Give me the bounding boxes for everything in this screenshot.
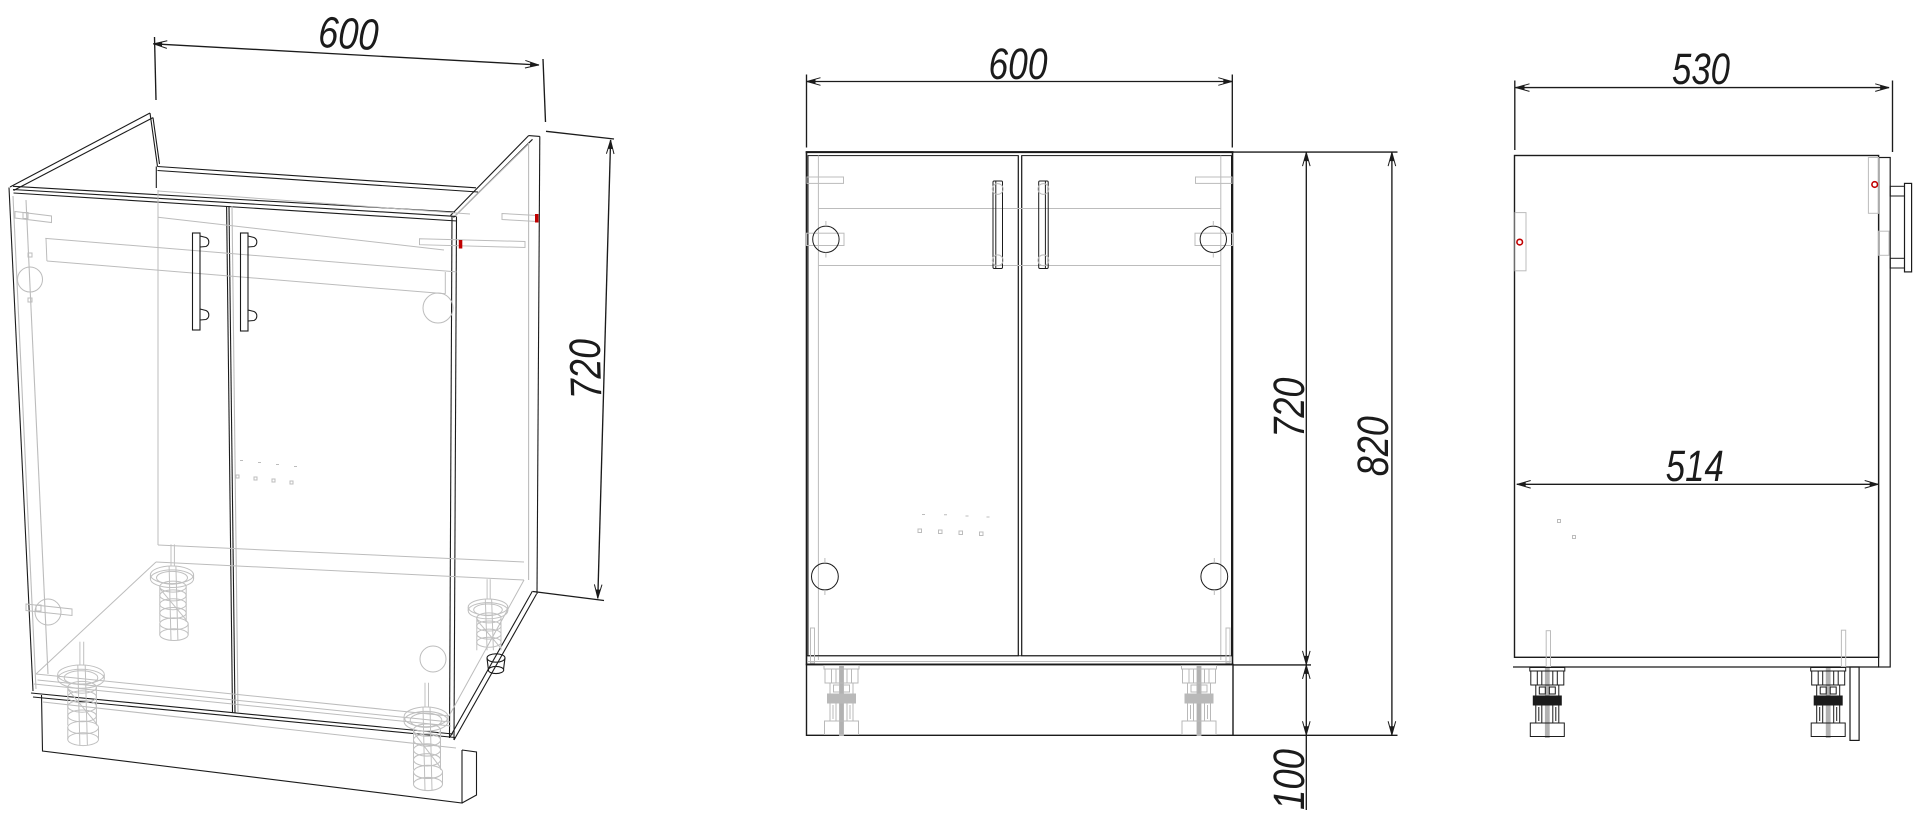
svg-text:600: 600 [317, 8, 380, 60]
svg-text:720: 720 [1265, 377, 1314, 437]
svg-text:100: 100 [1265, 749, 1314, 810]
svg-text:514: 514 [1666, 442, 1724, 491]
svg-text:530: 530 [1672, 45, 1730, 94]
svg-text:720: 720 [561, 338, 612, 400]
svg-text:820: 820 [1349, 416, 1398, 476]
svg-text:600: 600 [989, 40, 1048, 89]
